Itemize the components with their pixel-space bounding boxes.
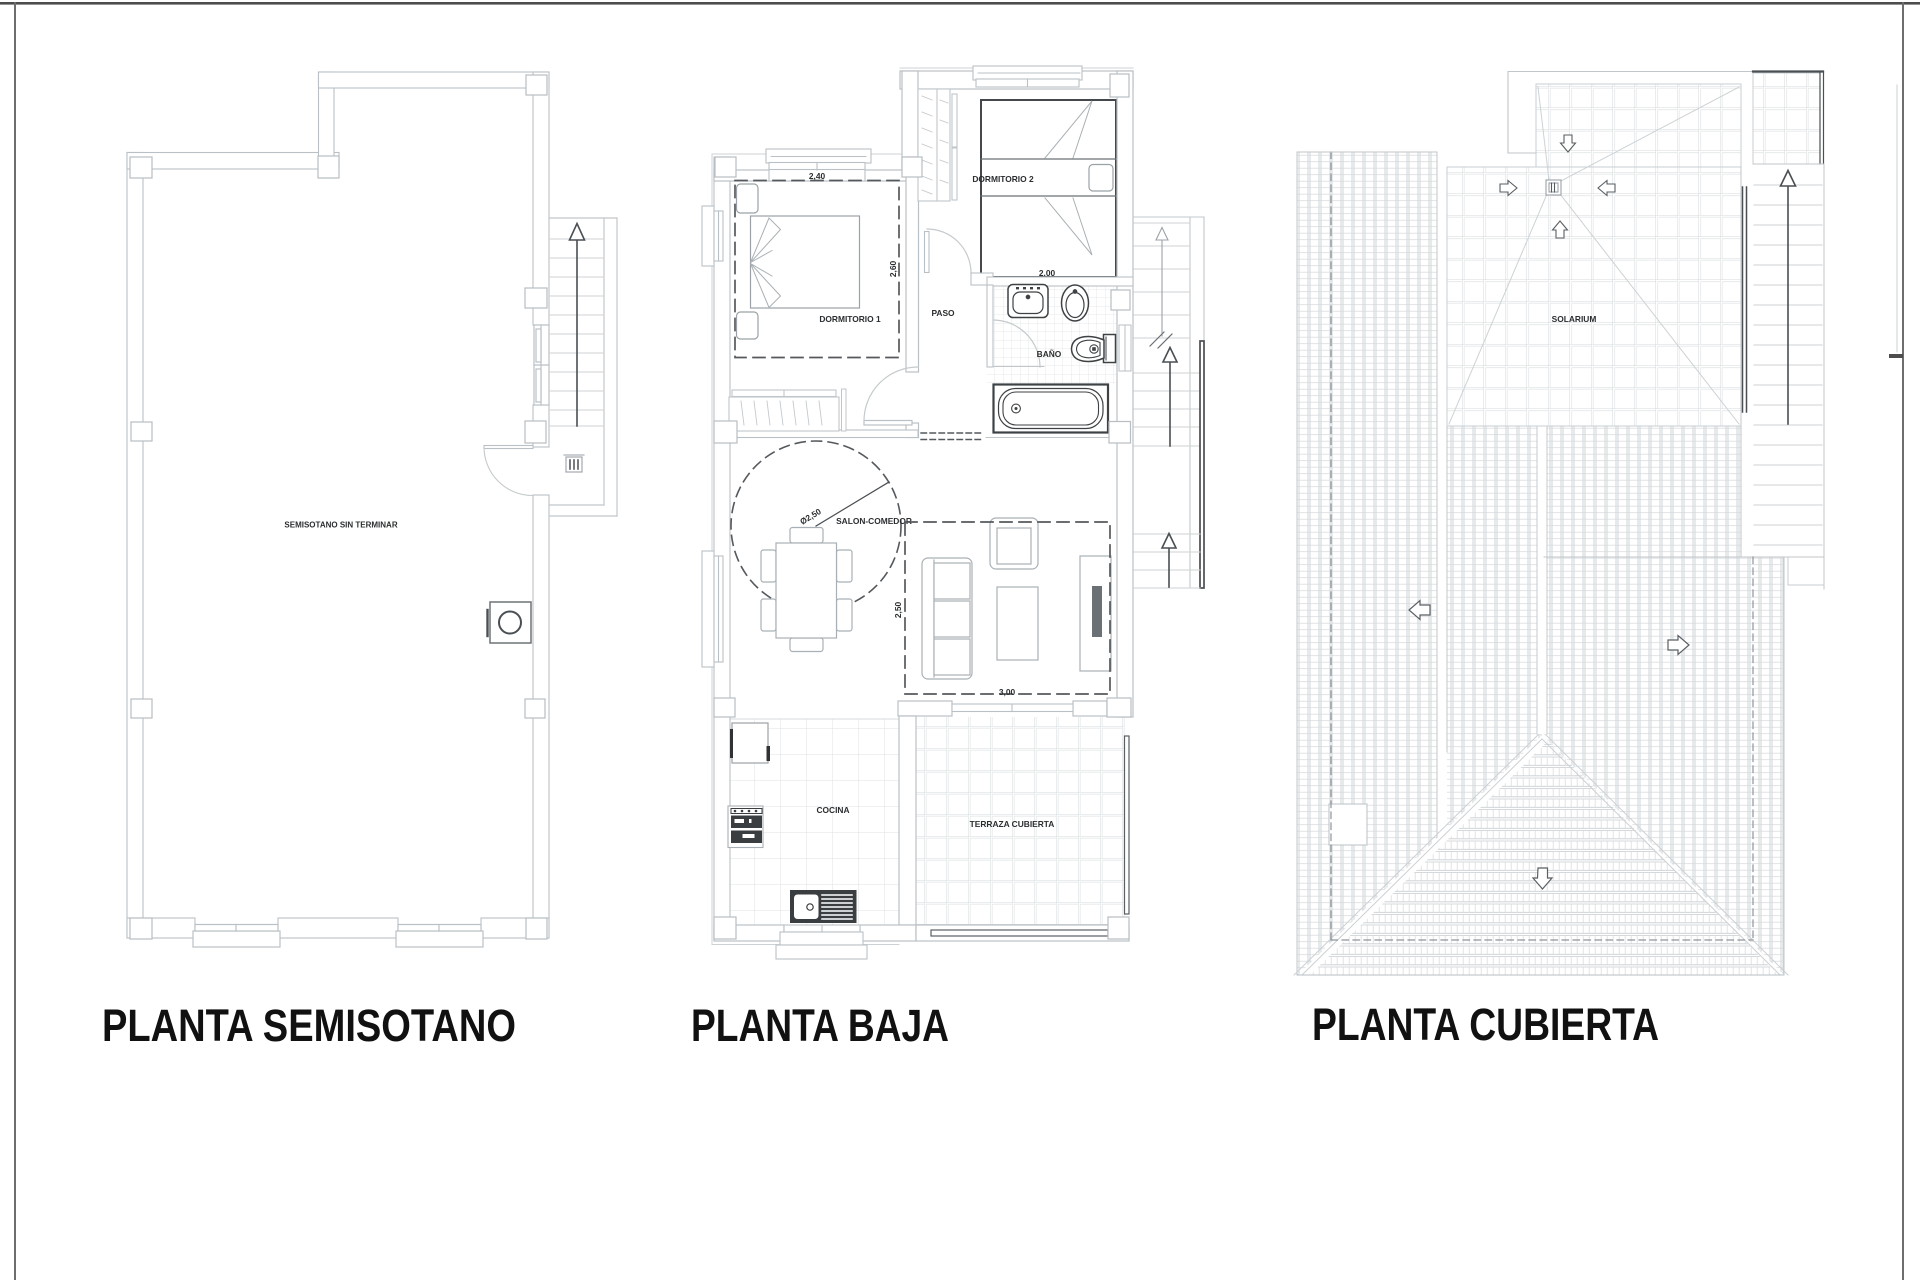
svg-text:BAÑO: BAÑO <box>1037 349 1062 359</box>
svg-text:PLANTA CUBIERTA: PLANTA CUBIERTA <box>1312 999 1659 1050</box>
svg-text:COCINA: COCINA <box>816 805 849 815</box>
svg-text:2,50: 2,50 <box>893 602 903 619</box>
svg-text:2,40: 2,40 <box>809 171 826 181</box>
svg-text:PLANTA BAJA: PLANTA BAJA <box>691 1000 949 1051</box>
svg-text:3,00: 3,00 <box>999 687 1016 697</box>
svg-text:2,60: 2,60 <box>888 261 898 278</box>
svg-text:SALON-COMEDOR: SALON-COMEDOR <box>836 516 912 526</box>
svg-text:PLANTA SEMISOTANO: PLANTA SEMISOTANO <box>102 1000 516 1051</box>
svg-text:DORMITORIO 1: DORMITORIO 1 <box>819 314 881 324</box>
svg-text:SEMISOTANO SIN TERMINAR: SEMISOTANO SIN TERMINAR <box>284 521 397 530</box>
svg-text:SOLARIUM: SOLARIUM <box>1552 314 1597 324</box>
svg-text:DORMITORIO 2: DORMITORIO 2 <box>972 174 1034 184</box>
svg-text:PASO: PASO <box>931 308 955 318</box>
svg-text:TERRAZA CUBIERTA: TERRAZA CUBIERTA <box>970 819 1055 829</box>
